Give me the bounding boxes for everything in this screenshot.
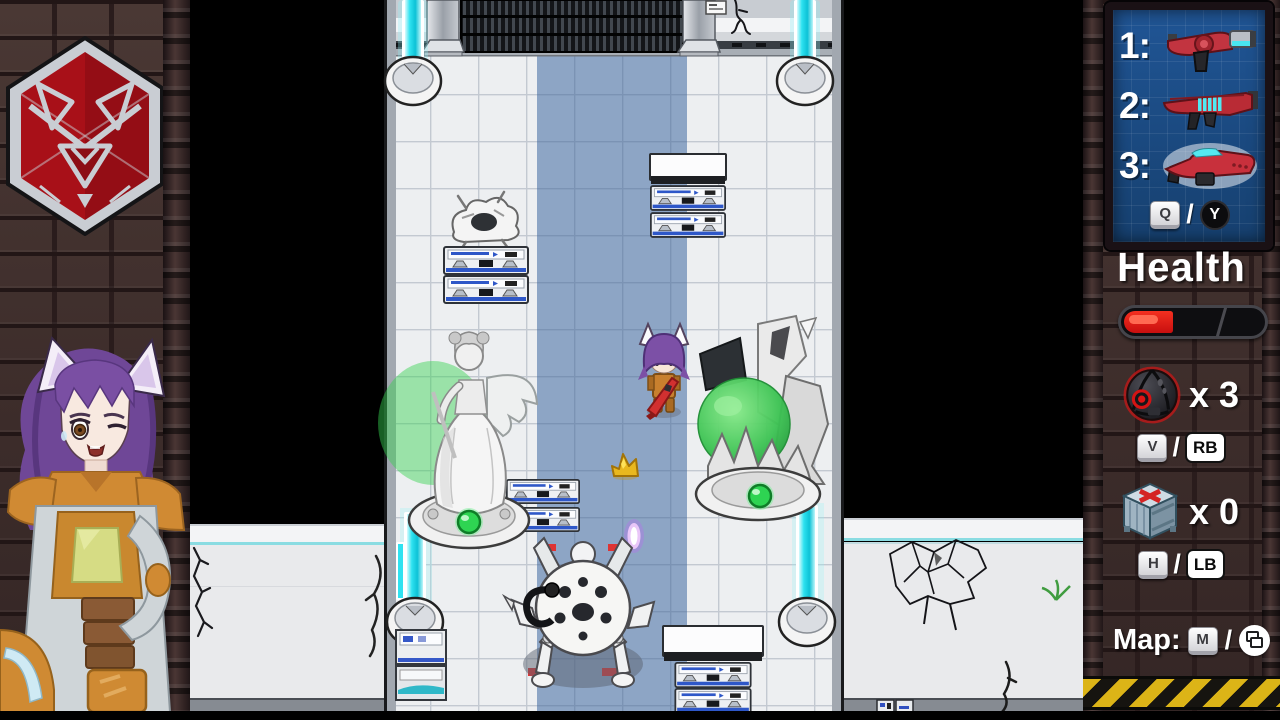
room-edge — [384, 0, 387, 712]
weapon-slot-2: 2: — [1119, 76, 1261, 136]
view-button-icon — [1239, 625, 1270, 656]
fox-eared-character-portrait — [0, 330, 190, 712]
grenade-count: x 3 — [1189, 374, 1239, 416]
health-bar — [1118, 305, 1268, 339]
adjacent-room-right — [836, 518, 1083, 712]
supply-keys: H / LB — [1083, 549, 1280, 580]
weapon-slot-3: 3: — [1119, 136, 1261, 196]
supply-crate-counter: x 0 — [1117, 480, 1239, 544]
key-separator: / — [1172, 432, 1180, 463]
supply-crate-stack — [650, 154, 726, 237]
grenade-keys: V / RB — [1083, 432, 1280, 463]
game-viewport[interactable] — [190, 0, 1083, 720]
gamepad-y-button: Y — [1200, 200, 1230, 230]
red-rifle-icon — [1159, 79, 1261, 133]
vent-grille — [461, 0, 683, 52]
keycap-m: M — [1188, 627, 1218, 655]
grenade-counter: x 3 — [1121, 364, 1239, 426]
locker-stack — [396, 630, 446, 700]
adjacent-room-left — [190, 524, 393, 712]
room-edge — [832, 0, 841, 712]
keycap-v: V — [1137, 434, 1167, 462]
weapon-select-panel: 1: 2: — [1105, 2, 1273, 250]
grenade-icon — [1121, 364, 1183, 426]
letterbox-bottom — [0, 711, 1280, 720]
left-panel — [0, 0, 190, 720]
fox-hex-faction-emblem-icon — [0, 36, 170, 236]
wall-pillar-strip — [1083, 0, 1103, 720]
health-bar-fill — [1124, 311, 1173, 333]
health-label: Health — [1085, 244, 1278, 291]
gamepad-lb-button: LB — [1186, 549, 1225, 580]
keycap-q: Q — [1150, 201, 1180, 229]
room-edge — [841, 0, 844, 712]
key-separator: / — [1173, 549, 1181, 580]
game-screen: 1: 2: — [0, 0, 1280, 720]
map-label: Map: — [1113, 624, 1181, 657]
weapon-slot-3-label: 3: — [1119, 145, 1159, 187]
weapon-slot-2-label: 2: — [1119, 85, 1159, 127]
supply-crate-count: x 0 — [1189, 491, 1239, 533]
control-terminal — [444, 247, 528, 303]
key-separator: / — [1186, 199, 1194, 230]
keycap-h: H — [1138, 551, 1168, 579]
weapon-slot-1-label: 1: — [1119, 25, 1159, 67]
red-shotgun-icon — [1159, 139, 1261, 193]
gamepad-rb-button: RB — [1185, 432, 1226, 463]
weapon-switch-keys: Q / Y — [1119, 199, 1261, 230]
key-separator: / — [1225, 625, 1233, 656]
hud-panel: 1: 2: — [1083, 0, 1280, 720]
supply-crate-stack — [663, 626, 763, 713]
red-pistol-icon — [1159, 19, 1261, 73]
supply-crate-icon — [1117, 480, 1183, 544]
health-bar-notch — [1216, 307, 1227, 337]
wall-pillar — [422, 0, 464, 56]
wall-sign — [706, 1, 726, 14]
weapon-slot-1: 1: — [1119, 16, 1261, 76]
map-hint: Map: M / — [1113, 624, 1270, 657]
room-top-wall — [396, 0, 832, 57]
hazard-stripe — [1083, 676, 1280, 710]
